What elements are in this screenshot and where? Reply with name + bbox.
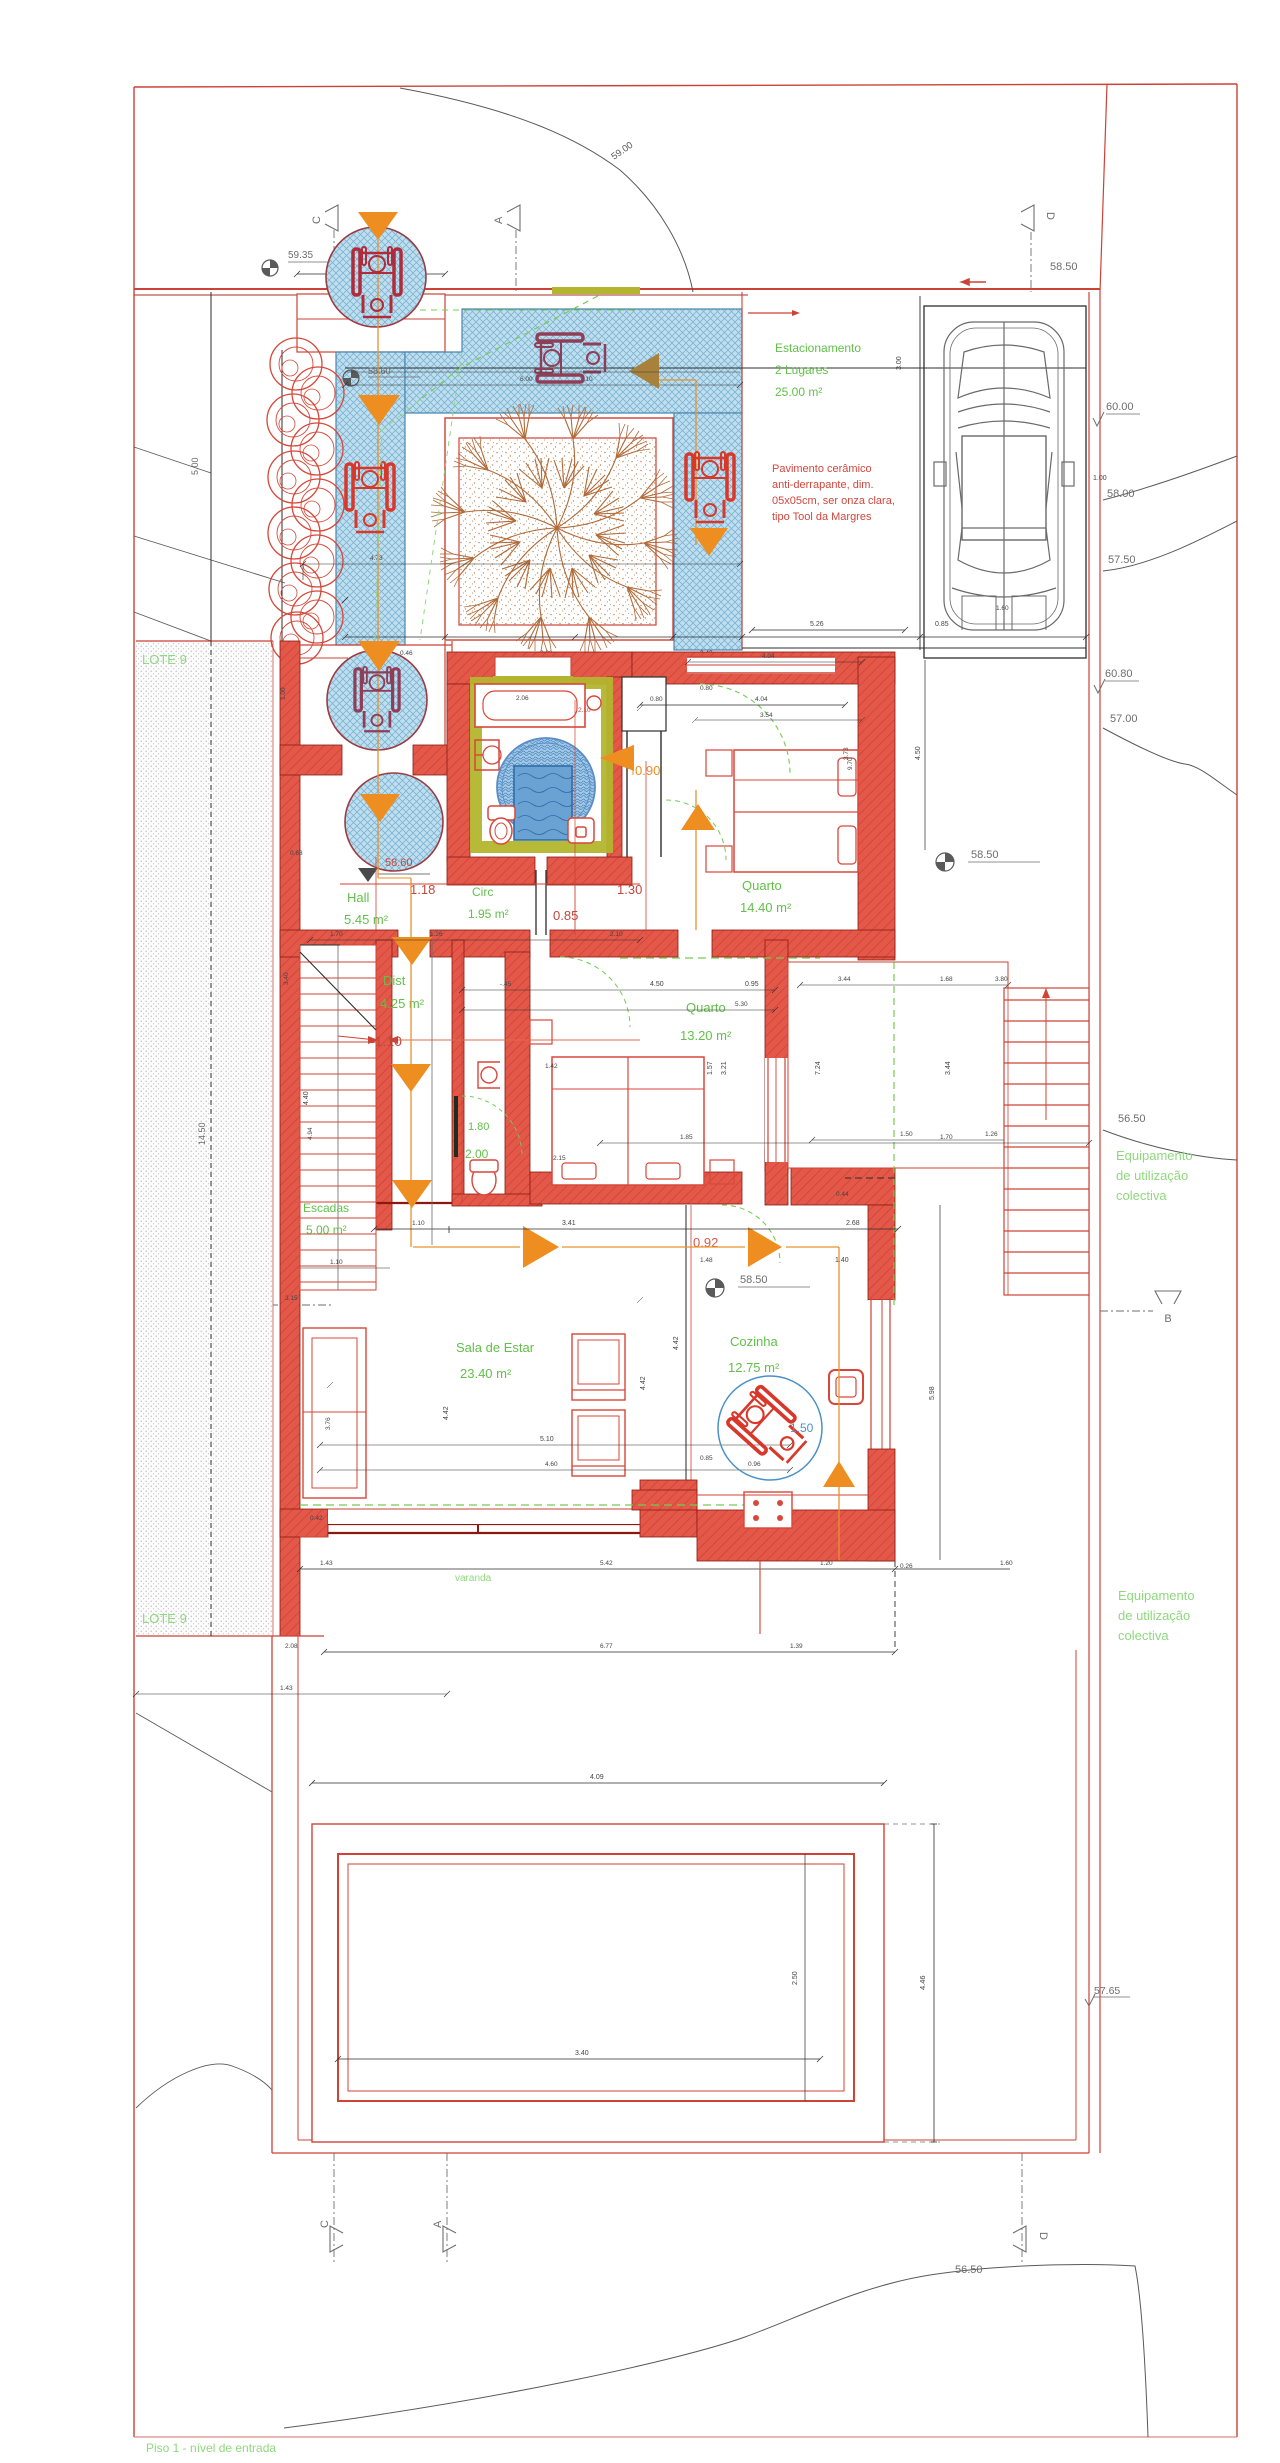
svg-text:1.43: 1.43 (280, 1685, 293, 1692)
svg-text:Hall: Hall (347, 890, 370, 905)
svg-text:1.80: 1.80 (468, 1121, 489, 1133)
svg-text:0.96: 0.96 (748, 1461, 761, 1468)
svg-text:4.04: 4.04 (762, 653, 775, 660)
svg-text:1.70: 1.70 (940, 1134, 953, 1141)
svg-text:0.44: 0.44 (836, 1191, 849, 1198)
svg-text:3.54: 3.54 (760, 712, 773, 719)
svg-text:4.42: 4.42 (673, 1336, 680, 1350)
svg-text:60.00: 60.00 (1106, 401, 1134, 413)
svg-text:3.21: 3.21 (721, 1061, 728, 1075)
svg-text:4.25 m²: 4.25 m² (380, 996, 425, 1011)
svg-text:23.40 m²: 23.40 m² (460, 1366, 512, 1381)
svg-text:Cozinha: Cozinha (730, 1334, 778, 1349)
svg-text:2.68: 2.68 (846, 1220, 860, 1227)
svg-text:58.60: 58.60 (385, 857, 413, 869)
svg-text:58.00: 58.00 (1107, 488, 1135, 500)
svg-text:Quarto: Quarto (742, 878, 782, 893)
svg-text:1.20: 1.20 (820, 1560, 833, 1567)
svg-text:0.90: 0.90 (635, 763, 660, 778)
svg-text:3.41: 3.41 (562, 1220, 576, 1227)
svg-text:3.40: 3.40 (575, 2050, 589, 2057)
svg-text:-.45: -.45 (500, 981, 512, 988)
svg-text:5.30: 5.30 (735, 1001, 748, 1008)
svg-text:1.60: 1.60 (1000, 1560, 1013, 1567)
svg-text:2.10: 2.10 (610, 931, 623, 938)
svg-text:2.15: 2.15 (553, 1155, 566, 1162)
svg-text:57.00: 57.00 (1110, 713, 1138, 725)
svg-text:1.00: 1.00 (1093, 475, 1107, 482)
svg-text:6.00: 6.00 (520, 376, 533, 383)
svg-text:Sala de Estar: Sala de Estar (456, 1340, 535, 1355)
svg-text:1.70: 1.70 (330, 931, 343, 938)
svg-text:Circ: Circ (472, 885, 493, 899)
svg-text:C: C (319, 2220, 331, 2228)
svg-text:12.75 m²: 12.75 m² (728, 1360, 780, 1375)
svg-text:0.46: 0.46 (400, 650, 413, 657)
svg-text:Piso 1 - nível de entrada: Piso 1 - nível de entrada (146, 2441, 276, 2455)
svg-text:B: B (1164, 1313, 1171, 1325)
svg-text:A: A (432, 2220, 444, 2228)
svg-text:Dist: Dist (383, 973, 406, 988)
svg-text:A: A (493, 216, 505, 224)
svg-text:colectiva: colectiva (1118, 1628, 1169, 1643)
svg-text:0.68: 0.68 (290, 850, 303, 857)
svg-text:7.24: 7.24 (815, 1061, 822, 1075)
svg-text:2.06: 2.06 (516, 695, 529, 702)
svg-text:1.60: 1.60 (996, 605, 1009, 612)
svg-text:14.50: 14.50 (197, 1122, 207, 1145)
svg-text:4.73: 4.73 (370, 555, 383, 562)
svg-text:3.00: 3.00 (896, 356, 903, 370)
svg-text:25.00 m²: 25.00 m² (775, 385, 822, 399)
svg-text:4.42: 4.42 (640, 1376, 647, 1390)
svg-text:LOTE 9: LOTE 9 (142, 1611, 187, 1626)
svg-text:5.42: 5.42 (600, 1560, 613, 1567)
svg-text:3.44: 3.44 (838, 976, 851, 983)
svg-text:57.65: 57.65 (1094, 1985, 1120, 1997)
svg-text:2.00: 2.00 (465, 1147, 489, 1161)
svg-text:6.77: 6.77 (600, 1643, 613, 1650)
svg-text:0.92: 0.92 (693, 1235, 718, 1250)
svg-text:1.42: 1.42 (545, 1063, 558, 1070)
svg-text:2.08: 2.08 (285, 1643, 298, 1650)
svg-text:4.50: 4.50 (915, 746, 922, 760)
svg-text:4.94: 4.94 (307, 1127, 314, 1140)
svg-text:3.40: 3.40 (283, 972, 290, 985)
svg-text:5.00 m²: 5.00 m² (306, 1223, 347, 1237)
svg-text:Pavimento cerâmico: Pavimento cerâmico (772, 463, 872, 475)
svg-text:58.50: 58.50 (971, 849, 999, 861)
svg-text:0.95: 0.95 (745, 981, 759, 988)
svg-text:1.43: 1.43 (320, 1560, 333, 1567)
svg-text:5.00: 5.00 (190, 457, 200, 475)
svg-text:varanda: varanda (455, 1573, 492, 1584)
svg-text:1.26: 1.26 (430, 931, 443, 938)
svg-text:4.09: 4.09 (590, 1774, 604, 1781)
svg-text:1.68: 1.68 (940, 976, 953, 983)
svg-text:1.00: 1.00 (280, 687, 287, 700)
svg-text:05x05cm, ser onza clara,: 05x05cm, ser onza clara, (772, 495, 895, 507)
svg-text:60.80: 60.80 (1105, 668, 1133, 680)
svg-text:tipo Tool da Margres: tipo Tool da Margres (772, 511, 872, 523)
svg-text:de utilização: de utilização (1118, 1608, 1190, 1623)
svg-text:Equipamento: Equipamento (1116, 1148, 1193, 1163)
svg-text:3.80: 3.80 (995, 976, 1008, 983)
svg-text:1.10: 1.10 (330, 1259, 343, 1266)
svg-text:1.10: 1.10 (412, 1220, 425, 1227)
svg-text:2.50: 2.50 (792, 1971, 799, 1985)
svg-text:5.45 m²: 5.45 m² (344, 912, 389, 927)
svg-text:1.85: 1.85 (680, 1134, 693, 1141)
svg-text:0.85: 0.85 (935, 621, 949, 628)
svg-text:de utilização: de utilização (1116, 1168, 1188, 1183)
svg-text:4.42: 4.42 (443, 1406, 450, 1420)
svg-text:3.76: 3.76 (325, 1417, 332, 1430)
svg-text:1.26: 1.26 (985, 1131, 998, 1138)
svg-text:LOTE 9: LOTE 9 (142, 652, 187, 667)
svg-text:Equipamento: Equipamento (1118, 1588, 1195, 1603)
svg-text:3.15: 3.15 (285, 1295, 298, 1302)
svg-text:0.85: 0.85 (700, 1455, 713, 1462)
svg-text:anti-derrapante, dim.: anti-derrapante, dim. (772, 479, 874, 491)
svg-text:3.44: 3.44 (945, 1061, 952, 1075)
svg-text:9.70: 9.70 (847, 757, 854, 770)
svg-text:1.57: 1.57 (707, 1061, 714, 1075)
svg-text:colectiva: colectiva (1116, 1188, 1167, 1203)
svg-text:Quarto: Quarto (686, 1000, 726, 1015)
svg-text:Estacionamento: Estacionamento (775, 341, 861, 355)
svg-text:0.85: 0.85 (553, 908, 578, 923)
svg-text:1.39: 1.39 (790, 1643, 803, 1650)
svg-text:4.50: 4.50 (650, 981, 664, 988)
svg-text:0.80: 0.80 (650, 696, 663, 703)
svg-text:D: D (1044, 212, 1056, 220)
svg-text:1.95 m²: 1.95 m² (468, 907, 509, 921)
svg-text:1.50: 1.50 (900, 1131, 913, 1138)
svg-text:56.50: 56.50 (955, 2264, 983, 2276)
svg-text:4.60: 4.60 (545, 1461, 558, 1468)
svg-text:13.20 m²: 13.20 m² (680, 1028, 732, 1043)
svg-text:1.50: 1.50 (790, 1421, 814, 1435)
svg-text:58.50: 58.50 (740, 1274, 768, 1286)
svg-text:58.60: 58.60 (368, 366, 391, 376)
svg-text:2 Lugares: 2 Lugares (775, 363, 828, 377)
svg-text:0.42: 0.42 (310, 1515, 323, 1522)
svg-text:59.35: 59.35 (288, 250, 313, 261)
svg-text:2.10: 2.10 (578, 707, 591, 714)
svg-text:14.40 m²: 14.40 m² (740, 900, 792, 915)
svg-text:57.50: 57.50 (1108, 554, 1136, 566)
svg-text:Escadas: Escadas (303, 1201, 349, 1215)
svg-text:4.40: 4.40 (303, 1091, 310, 1105)
svg-text:1.48: 1.48 (700, 1257, 713, 1264)
svg-text:5.10: 5.10 (540, 1436, 554, 1443)
svg-text:1.40: 1.40 (835, 1257, 849, 1264)
svg-text:56.50: 56.50 (1118, 1113, 1146, 1125)
svg-text:D: D (1037, 2232, 1049, 2240)
svg-text:C: C (311, 216, 323, 224)
svg-text:58.50: 58.50 (1050, 261, 1078, 273)
svg-text:4.04: 4.04 (755, 696, 768, 703)
svg-text:4.46: 4.46 (918, 1975, 927, 1990)
svg-text:5.98: 5.98 (929, 1386, 936, 1400)
svg-text:5.26: 5.26 (810, 621, 824, 628)
svg-text:0.80: 0.80 (700, 685, 713, 692)
